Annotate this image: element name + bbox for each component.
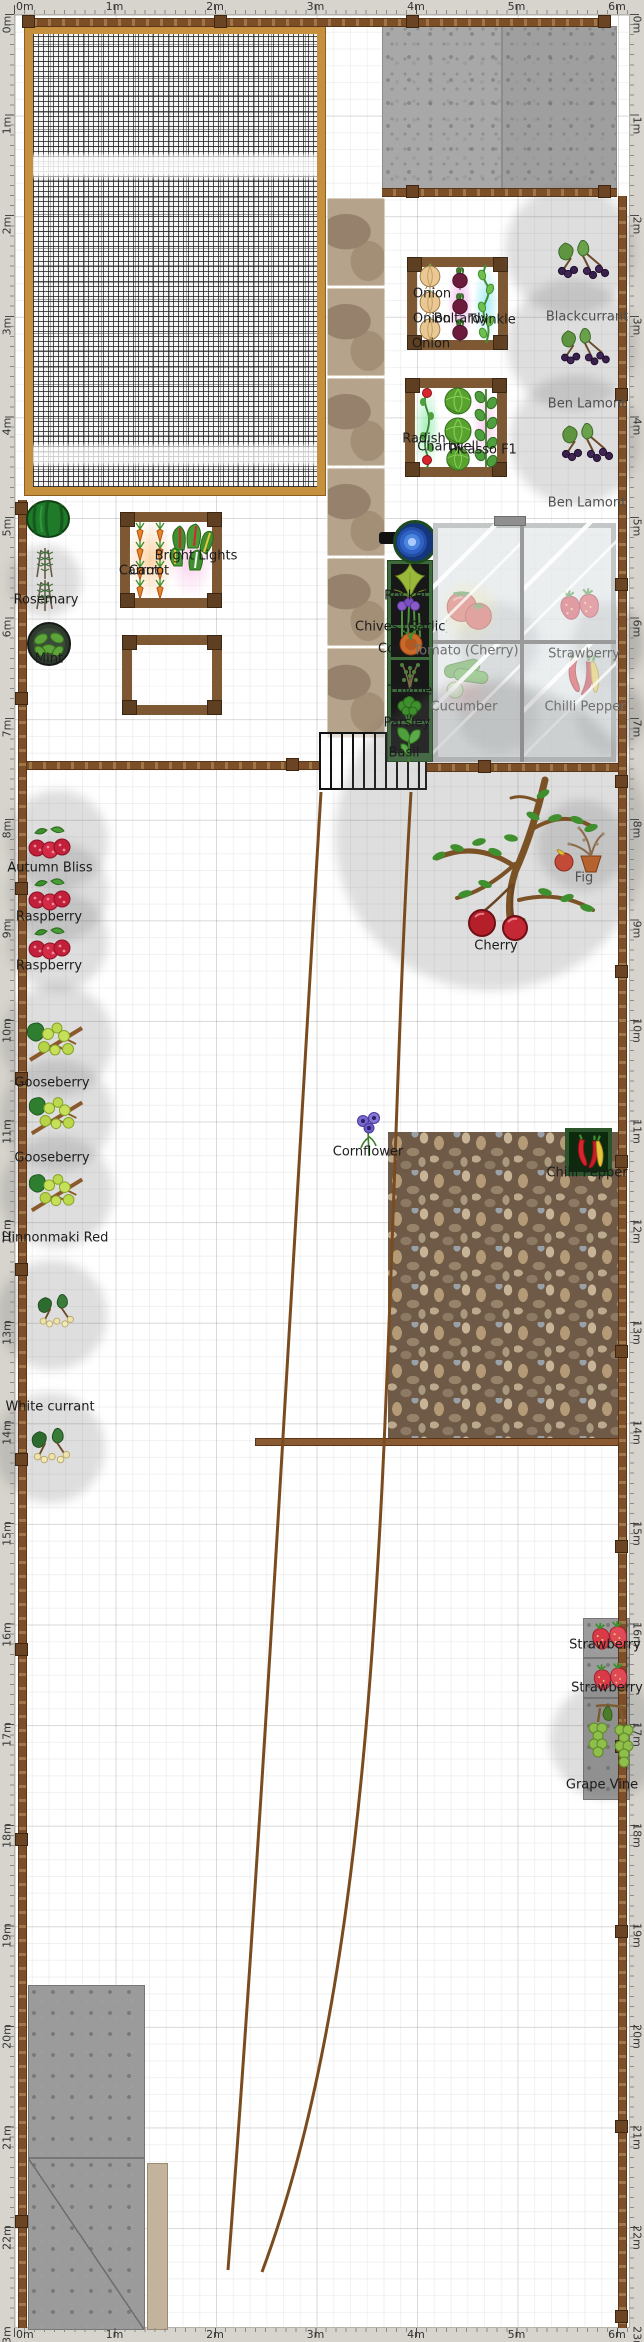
- ruler-label: 12m: [631, 1219, 644, 1245]
- plant-label: Onion: [412, 337, 450, 352]
- ruler-label: 7m: [1, 716, 14, 742]
- plant-label: Chives (Garlic): [355, 620, 447, 635]
- pea-vine-icon[interactable]: [477, 263, 495, 345]
- ruler-label: 21m: [631, 2124, 644, 2150]
- cabbage-icon[interactable]: [442, 386, 474, 416]
- raspberry-icon[interactable]: [27, 925, 71, 961]
- ruler-left: 0m1m2m3m4m5m6m7m8m9m10m11m12m13m14m15m16…: [0, 14, 14, 2328]
- plant-label: White currant: [5, 1400, 94, 1415]
- plant-label: Gooseberry: [14, 1076, 89, 1091]
- stone-path-slab[interactable]: [327, 378, 385, 466]
- white-currant-icon[interactable]: [26, 1426, 74, 1470]
- ruler-label: 5m: [631, 515, 644, 541]
- ruler-label: 14m: [631, 1420, 644, 1446]
- fig-icon[interactable]: [551, 818, 607, 878]
- plant-label: Strawberry: [571, 1681, 643, 1696]
- melon-pot-icon[interactable]: [26, 500, 70, 538]
- ruler-label: 1m: [1, 112, 14, 138]
- plant-label: Onion: [413, 287, 451, 302]
- plant-label: Ben Lamont: [548, 397, 626, 412]
- plant-label: Strawberry: [569, 1638, 641, 1653]
- blackcurrant-icon[interactable]: [553, 240, 611, 282]
- bed-edge-bar[interactable]: [255, 1438, 620, 1446]
- fence-right[interactable]: [618, 196, 627, 2328]
- paving-slab[interactable]: [382, 26, 502, 190]
- ruler-label: 5m: [1, 515, 14, 541]
- ruler-label: 4m: [631, 414, 644, 440]
- ruler-label: 8m: [1, 816, 14, 842]
- garden-plan-canvas: 0m1m2m3m4m5m6m 0m1m2m3m4m5m6m 0m1m2m3m4m…: [0, 0, 644, 2342]
- ruler-label: 2m: [1, 213, 14, 239]
- plant-label: Blackcurrant: [546, 310, 628, 325]
- ruler-label: 14m: [1, 1420, 14, 1446]
- beetroot-icon[interactable]: [450, 266, 470, 290]
- carrot-icon[interactable]: [132, 522, 148, 600]
- ruler-label: 15m: [631, 1521, 644, 1547]
- ruler-label: 3m: [1, 313, 14, 339]
- ruler-label: 16m: [1, 1621, 14, 1647]
- ruler-label: 9m: [631, 917, 644, 943]
- plant-label: Parsley: [384, 716, 431, 731]
- ruler-label: 11m: [631, 1118, 644, 1144]
- ruler-label: 0m: [16, 2328, 34, 2341]
- grape-vine-icon[interactable]: [586, 1702, 636, 1774]
- ruler-label: 7m: [631, 716, 644, 742]
- plant-label: Cucumber: [431, 700, 498, 715]
- plant-label: Ben Lamont: [548, 496, 626, 511]
- ruler-label: 21m: [1, 2124, 14, 2150]
- ruler-label: 4m: [407, 0, 425, 13]
- ruler-label: 0m: [16, 0, 34, 13]
- ruler-label: 13m: [631, 1319, 644, 1345]
- greenhouse-pane: [524, 523, 616, 640]
- ruler-label: 18m: [1, 1822, 14, 1848]
- side-board[interactable]: [147, 2163, 168, 2330]
- ruler-label: 5m: [508, 0, 526, 13]
- ruler-label: 20m: [1, 2024, 14, 2050]
- blackcurrant-icon[interactable]: [556, 328, 612, 368]
- raised-bed-empty[interactable]: [122, 635, 222, 715]
- ruler-label: 11m: [1, 1118, 14, 1144]
- ruler-label: 3m: [307, 0, 325, 13]
- ruler-label: 2m: [206, 0, 224, 13]
- plant-label: Chilli Pepper: [544, 700, 625, 715]
- plant-label: Autumn Bliss: [7, 861, 92, 876]
- fence-top[interactable]: [23, 18, 609, 27]
- ruler-label: 8m: [631, 816, 644, 842]
- ruler-label: 0m: [631, 12, 644, 38]
- ruler-label: 17m: [1, 1722, 14, 1748]
- ruler-label: 22m: [631, 2225, 644, 2251]
- plant-label: Basil: [389, 746, 420, 761]
- plant-label: Tomato (Cherry): [413, 644, 518, 659]
- stone-path-slab[interactable]: [327, 648, 385, 738]
- plant-label: Chilli Pepper: [546, 1166, 627, 1181]
- ruler-label: 1m: [631, 112, 644, 138]
- fence-mid-left[interactable]: [18, 761, 319, 770]
- plant-label: Cornflower: [333, 1145, 404, 1160]
- ruler-label: 2m: [206, 2328, 224, 2341]
- stone-path-slab[interactable]: [327, 288, 385, 376]
- plant-label: Coriander: [378, 642, 398, 657]
- ruler-label: 4m: [1, 414, 14, 440]
- ruler-label: 22m: [1, 2225, 14, 2251]
- gooseberry-icon[interactable]: [26, 1168, 88, 1218]
- fence-mid-right[interactable]: [427, 763, 618, 772]
- ruler-label: 23m: [1, 2325, 14, 2342]
- plant-label: Thyme: [388, 684, 433, 699]
- gooseberry-icon[interactable]: [26, 1092, 88, 1140]
- raspberry-icon[interactable]: [27, 876, 71, 912]
- ruler-label: 6m: [631, 615, 644, 641]
- onion-icon[interactable]: [418, 262, 442, 289]
- plant-label: Hinnonmaki Red: [2, 1231, 109, 1246]
- rosemary-icon[interactable]: [30, 546, 58, 580]
- ruler-label: 3m: [631, 313, 644, 339]
- ruler-label: 19m: [631, 1923, 644, 1949]
- plant-label: Picasso F1: [449, 443, 517, 458]
- plant-label: Rosemary: [14, 593, 79, 608]
- plant-label: Bright Lights: [155, 549, 238, 564]
- plant-label: Rocket: [384, 589, 428, 604]
- plant-label: Cherry: [474, 939, 517, 954]
- ruler-label: 23m: [631, 2325, 644, 2342]
- ruler-label: 17m: [631, 1722, 644, 1748]
- ruler-top: 0m1m2m3m4m5m6m: [14, 0, 630, 14]
- ruler-label: 19m: [1, 1923, 14, 1949]
- plant-label: Raspberry: [16, 910, 82, 925]
- paving-slab[interactable]: [502, 26, 617, 190]
- ruler-label: 4m: [407, 2328, 425, 2341]
- ruler-label: 1m: [106, 2328, 124, 2341]
- plant-label: Raspberry: [16, 959, 82, 974]
- plant-label: Strawberry: [548, 647, 620, 662]
- ruler-bottom: 0m1m2m3m4m5m6m: [14, 2328, 630, 2342]
- ruler-label: 15m: [1, 1521, 14, 1547]
- ruler-label: 1m: [106, 0, 124, 13]
- ruler-label: 10m: [1, 1018, 14, 1044]
- shed-upper[interactable]: [28, 1985, 145, 2158]
- stone-path-slab[interactable]: [327, 468, 385, 556]
- white-currant-icon[interactable]: [30, 1294, 80, 1332]
- raspberry-icon[interactable]: [27, 824, 71, 860]
- plant-label: Mint: [35, 652, 63, 667]
- plant-label: Twinkle: [468, 313, 515, 328]
- ruler-label: 20m: [631, 2024, 644, 2050]
- fruit-cage-netting[interactable]: [25, 26, 325, 495]
- ruler-label: 2m: [631, 213, 644, 239]
- ruler-label: 10m: [631, 1018, 644, 1044]
- blackcurrant-icon[interactable]: [556, 423, 616, 465]
- shed-lower[interactable]: [28, 2158, 145, 2330]
- ruler-label: 5m: [508, 2328, 526, 2341]
- gooseberry-icon[interactable]: [24, 1018, 88, 1066]
- radish-vine-icon[interactable]: [419, 384, 435, 470]
- ruler-label: 9m: [1, 917, 14, 943]
- plant-label: Fig: [575, 871, 593, 886]
- water-butt-icon[interactable]: [393, 520, 437, 564]
- ruler-right: 0m1m2m3m4m5m6m7m8m9m10m11m12m13m14m15m16…: [630, 14, 644, 2328]
- ruler-label: 6m: [1, 615, 14, 641]
- plant-label: Grape Vine: [566, 1778, 638, 1793]
- ruler-label: 6m: [608, 2328, 626, 2341]
- plant-label: Gooseberry: [14, 1151, 89, 1166]
- plant-label: Carrot: [129, 564, 169, 579]
- ruler-label: 13m: [1, 1319, 14, 1345]
- ruler-label: 0m: [1, 12, 14, 38]
- stone-path-slab[interactable]: [327, 198, 385, 286]
- ruler-label: 6m: [608, 0, 626, 13]
- greenhouse-vent-handle[interactable]: [494, 516, 526, 526]
- ruler-label: 18m: [631, 1822, 644, 1848]
- ruler-label: 3m: [307, 2328, 325, 2341]
